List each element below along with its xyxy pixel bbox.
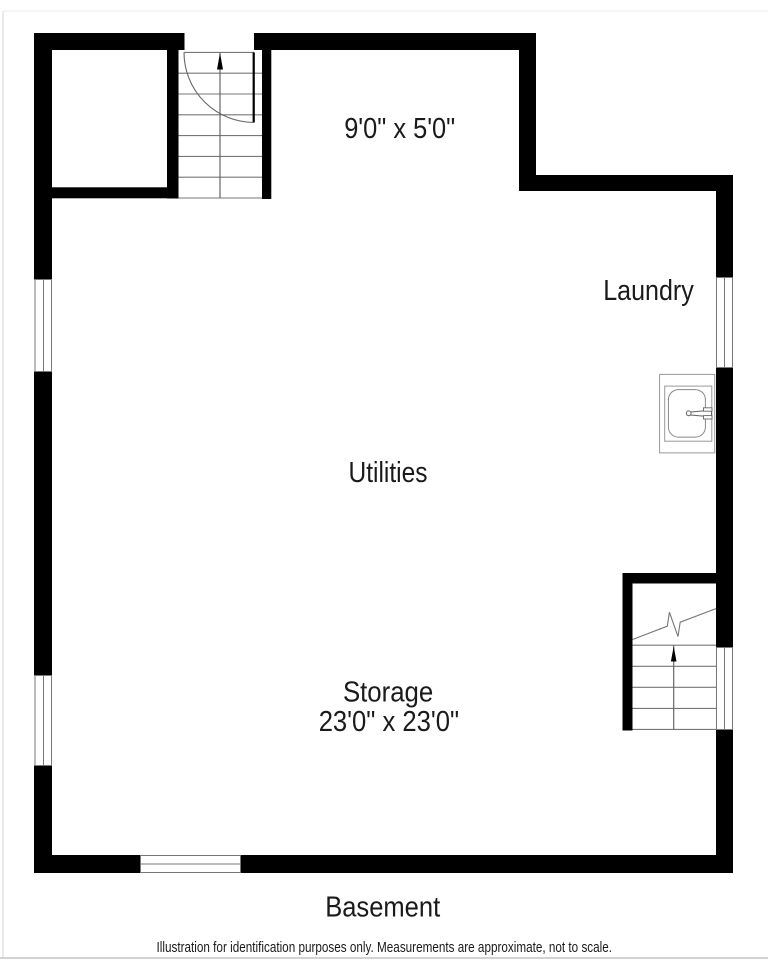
svg-text:9'0" x 5'0": 9'0" x 5'0" xyxy=(344,113,455,145)
svg-text:Basement: Basement xyxy=(325,891,440,923)
svg-text:Laundry: Laundry xyxy=(603,275,694,307)
svg-text:Storage: Storage xyxy=(343,677,433,709)
svg-text:23'0" x 23'0": 23'0" x 23'0" xyxy=(319,706,459,738)
svg-text:Utilities: Utilities xyxy=(349,457,428,489)
svg-text:Illustration for identificatio: Illustration for identification purposes… xyxy=(157,939,613,956)
